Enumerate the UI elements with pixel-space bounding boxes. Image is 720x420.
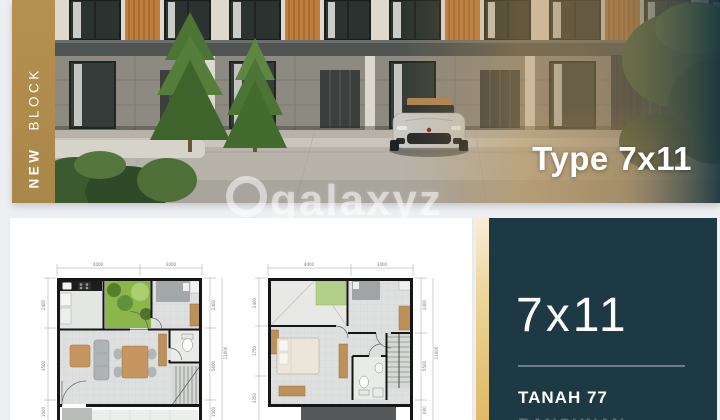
badge-word-new: NEW [26,147,41,189]
svg-text:2400: 2400 [422,299,427,310]
toilet [182,334,193,352]
svg-text:1750: 1750 [252,345,257,356]
svg-text:11000: 11000 [223,346,228,359]
svg-text:1500: 1500 [211,406,216,417]
svg-text:3000: 3000 [166,262,177,267]
svg-text:4000: 4000 [93,262,104,267]
svg-text:4000: 4000 [304,262,315,267]
stairs [172,366,200,405]
svg-text:3350: 3350 [252,392,257,403]
svg-text:600: 600 [422,406,427,414]
svg-text:2400: 2400 [41,299,46,310]
lower-roof-area [301,406,396,420]
type-label: Type 7x11 [532,140,692,178]
divider-line [518,365,685,367]
gold-accent-stripe [476,218,489,420]
property-flyer: Type 7x11 NEW BLOCK galaxyz [0,0,720,420]
building-area-label-partial: BANGUNAN [518,415,625,420]
first-floor-plan: 4000 3000 2400 3500 1500 2400 5600 1500 … [30,248,240,420]
svg-text:5600: 5600 [211,360,216,371]
porch [62,408,198,420]
svg-text:3500: 3500 [41,360,46,371]
watermark-logo-icon [226,176,267,217]
hero-section: Type 7x11 NEW BLOCK [12,0,720,203]
size-label: 7x11 [516,288,629,343]
hero-photo: Type 7x11 [55,0,720,203]
svg-text:5500: 5500 [422,360,427,371]
stairs [387,333,411,388]
svg-text:11000: 11000 [434,346,439,359]
land-area-label: TANAH 77 [518,388,608,408]
info-panel: 7x11 TANAH 77 BANGUNAN [489,218,717,420]
svg-text:2400: 2400 [211,299,216,310]
void-roof-area [270,280,348,326]
svg-text:1500: 1500 [41,406,46,417]
new-block-label: NEW BLOCK [26,67,41,189]
second-floor-plan: 4000 3000 2400 1750 3350 2400 5500 600 1… [241,248,451,420]
floor-plans-panel: 4000 3000 2400 3500 1500 2400 5600 1500 … [10,218,472,420]
svg-text:3000: 3000 [377,262,388,267]
svg-text:2400: 2400 [252,297,257,308]
badge-word-block: BLOCK [26,67,41,130]
new-block-banner: NEW BLOCK [12,0,55,203]
watermark: galaxyz [226,176,443,223]
watermark-text: galaxyz [270,176,443,225]
garden [105,280,152,328]
